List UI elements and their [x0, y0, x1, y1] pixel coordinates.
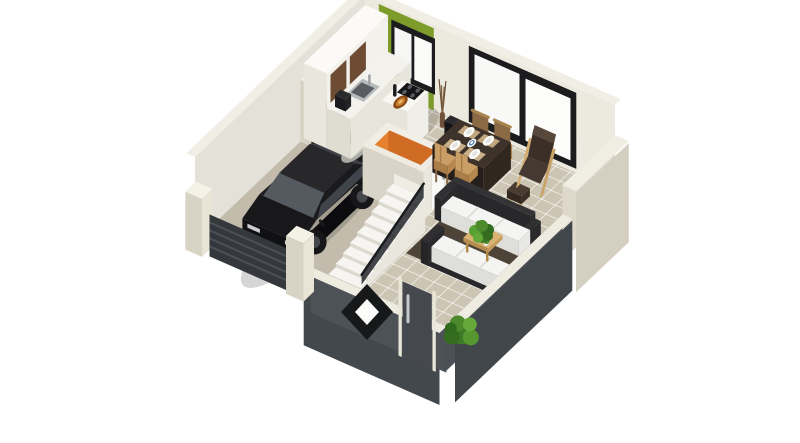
floorplan-scene	[0, 0, 800, 443]
floorplan-3d-render	[0, 0, 800, 443]
